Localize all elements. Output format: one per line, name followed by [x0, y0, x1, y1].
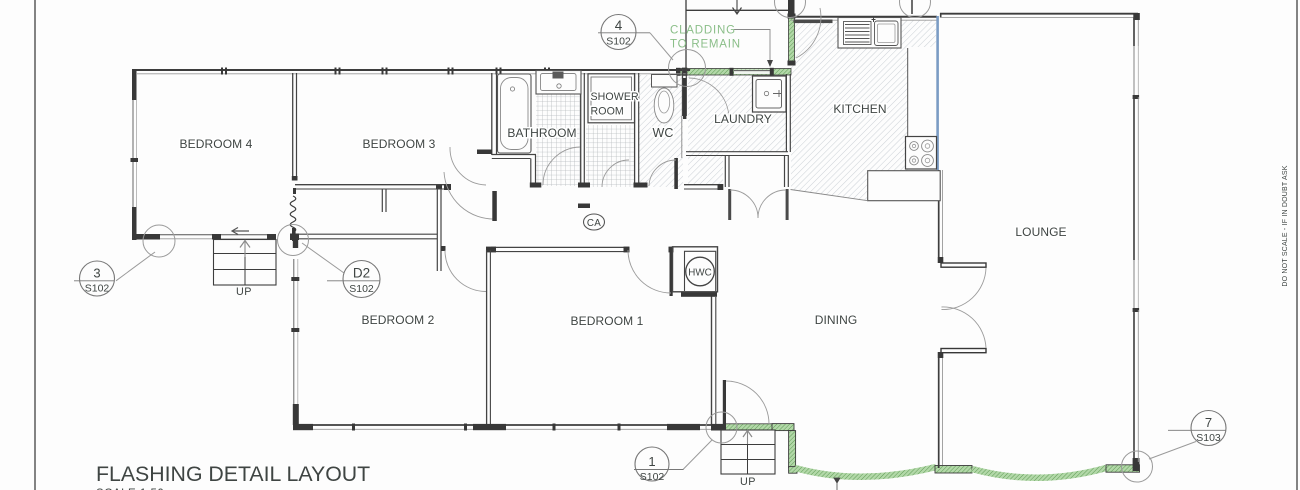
svg-text:HWC: HWC — [688, 267, 711, 278]
svg-text:FLASHING DETAIL LAYOUT: FLASHING DETAIL LAYOUT — [96, 462, 370, 486]
svg-text:3: 3 — [93, 266, 100, 281]
svg-text:LOUNGE: LOUNGE — [1015, 225, 1066, 239]
svg-text:UP: UP — [236, 286, 252, 298]
svg-text:S102: S102 — [640, 471, 665, 483]
svg-text:BEDROOM 2: BEDROOM 2 — [362, 313, 435, 327]
svg-text:KITCHEN: KITCHEN — [833, 102, 886, 116]
svg-text:BATHROOM: BATHROOM — [507, 126, 576, 140]
svg-text:CA: CA — [587, 218, 601, 229]
svg-text:S102: S102 — [349, 283, 374, 295]
svg-text:D2: D2 — [353, 266, 370, 281]
svg-text:4: 4 — [615, 18, 623, 33]
svg-text:S102: S102 — [606, 36, 631, 48]
svg-text:1: 1 — [648, 454, 655, 469]
svg-text:WC: WC — [652, 126, 673, 140]
svg-text:CLADDING: CLADDING — [670, 25, 736, 37]
svg-text:BEDROOM 3: BEDROOM 3 — [363, 137, 436, 151]
svg-text:BEDROOM 4: BEDROOM 4 — [180, 137, 253, 151]
svg-text:LAUNDRY: LAUNDRY — [714, 112, 772, 126]
svg-text:TO REMAIN: TO REMAIN — [670, 39, 741, 51]
svg-text:SHOWER: SHOWER — [591, 91, 640, 103]
svg-text:DINING: DINING — [815, 313, 858, 327]
svg-text:7: 7 — [1205, 415, 1212, 430]
svg-text:S103: S103 — [1196, 432, 1221, 444]
svg-text:BEDROOM 1: BEDROOM 1 — [571, 314, 644, 328]
svg-text:DO NOT SCALE - IF IN DOUBT ASK: DO NOT SCALE - IF IN DOUBT ASK — [1282, 165, 1289, 286]
svg-text:S102: S102 — [85, 283, 110, 295]
svg-text:UP: UP — [740, 476, 756, 488]
svg-text:ROOM: ROOM — [591, 106, 624, 118]
